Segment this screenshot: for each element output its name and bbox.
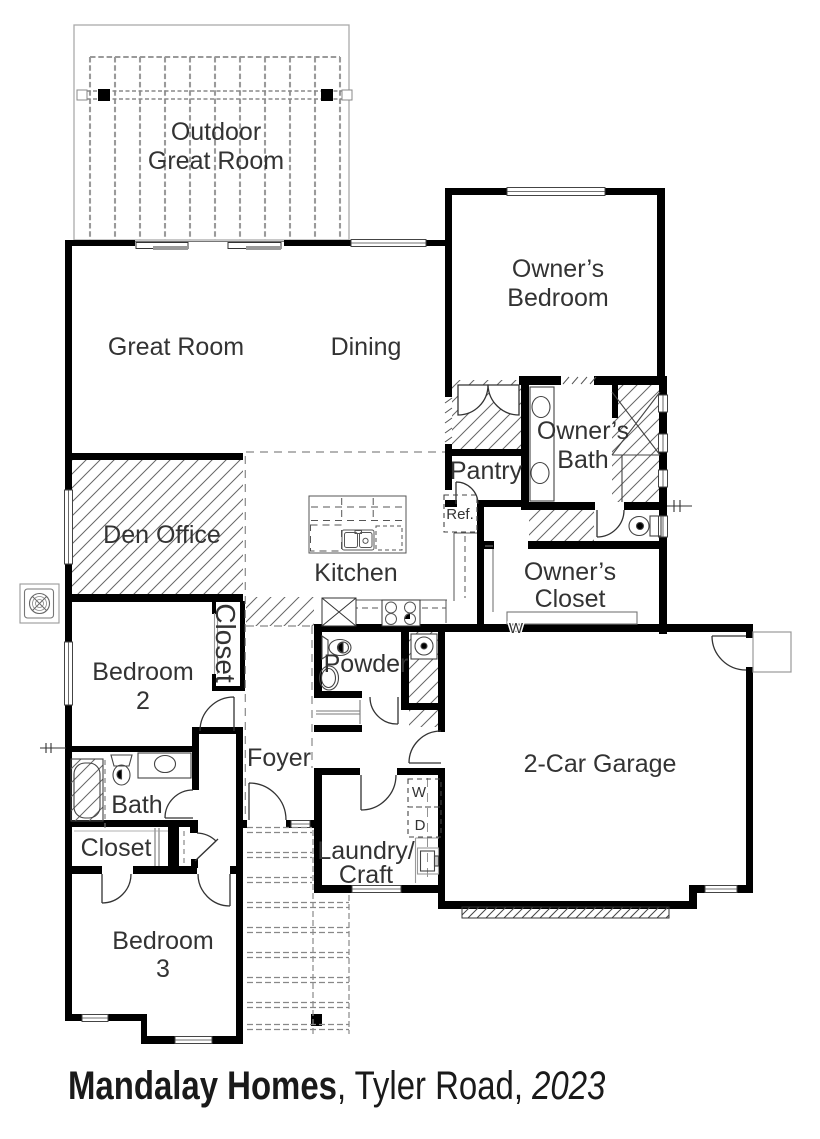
svg-text:3: 3 <box>156 955 170 983</box>
svg-text:Ref.: Ref. <box>446 506 474 523</box>
svg-text:Bedroom: Bedroom <box>507 284 608 312</box>
svg-text:Bedroom: Bedroom <box>92 658 193 686</box>
svg-text:Bath: Bath <box>557 446 608 474</box>
svg-text:D: D <box>415 817 426 834</box>
svg-text:Foyer: Foyer <box>247 744 311 772</box>
svg-text:Craft: Craft <box>339 861 393 889</box>
svg-text:Great Room: Great Room <box>108 333 244 361</box>
svg-text:Great Room: Great Room <box>148 147 284 175</box>
svg-text:Dining: Dining <box>331 333 402 361</box>
svg-text:Kitchen: Kitchen <box>314 559 397 587</box>
svg-text:Bath: Bath <box>111 791 162 819</box>
svg-text:Den Office: Den Office <box>103 521 221 549</box>
svg-text:Owner’s: Owner’s <box>537 417 629 445</box>
svg-text:Owner’s: Owner’s <box>512 255 604 283</box>
svg-text:Closet: Closet <box>81 834 152 862</box>
svg-text:Powder: Powder <box>324 650 409 678</box>
svg-text:Pantry: Pantry <box>450 457 523 485</box>
svg-text:W: W <box>412 784 427 801</box>
svg-text:Closet: Closet <box>210 603 241 683</box>
svg-text:Closet: Closet <box>535 585 606 613</box>
svg-text:2: 2 <box>136 687 150 715</box>
svg-text:2-Car Garage: 2-Car Garage <box>524 750 677 778</box>
svg-text:Outdoor: Outdoor <box>171 118 261 146</box>
svg-text:Owner’s: Owner’s <box>524 558 616 586</box>
svg-text:W: W <box>509 620 524 637</box>
svg-text:Bedroom: Bedroom <box>112 927 213 955</box>
